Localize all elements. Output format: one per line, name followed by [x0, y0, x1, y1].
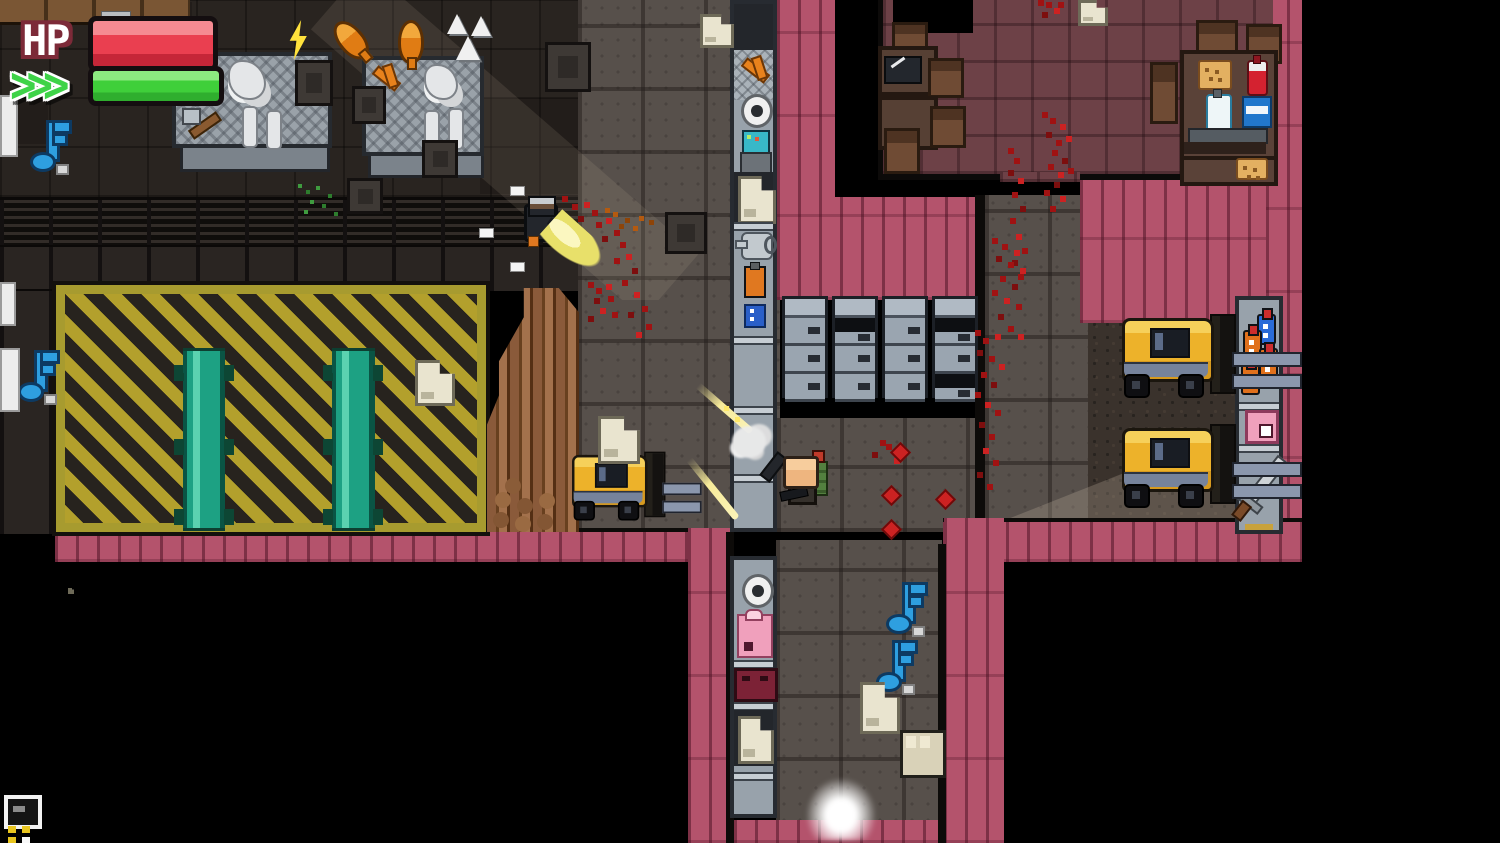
locker-cabinets	[782, 296, 978, 398]
note-head	[30, 152, 56, 172]
tracer-sparks	[724, 406, 729, 411]
torch-icon	[398, 20, 424, 64]
music-note-pickup	[14, 350, 56, 400]
conveyor-belt	[183, 348, 225, 531]
forklift-window	[1150, 328, 1190, 358]
bullet-casing	[479, 228, 494, 238]
green-particles	[298, 184, 302, 188]
locker-drawer	[785, 318, 825, 346]
vent-wall-row	[0, 197, 585, 248]
note-flag	[898, 640, 918, 654]
locker-drawer	[785, 346, 825, 374]
note-flag	[908, 595, 924, 608]
bullet-casing	[510, 186, 525, 196]
blood-trail	[975, 330, 981, 336]
wrench-item	[739, 56, 769, 82]
shelf-bar	[734, 406, 773, 415]
canister-item	[744, 266, 766, 298]
note-flag	[40, 363, 56, 376]
edge-item	[0, 348, 20, 412]
hammer-head	[182, 108, 201, 125]
locker-drawer	[885, 346, 925, 374]
locker-drawer-open	[935, 374, 975, 402]
cafeteria-doorway	[1000, 172, 1080, 182]
chair	[1150, 62, 1178, 124]
blood-splatter	[1038, 0, 1044, 6]
crate-beige	[900, 730, 946, 778]
crate-dark	[545, 42, 591, 92]
locker-drawer	[835, 346, 875, 374]
locker-drawer	[835, 374, 875, 402]
conveyor-brackets	[183, 357, 193, 373]
stamina-chevrons-icon: >>>	[10, 61, 59, 112]
blood-trail	[992, 238, 998, 244]
ketchup-bottle	[1247, 60, 1268, 96]
enemy-hand	[528, 236, 539, 247]
forklift	[1122, 312, 1300, 400]
stamina-bar	[88, 66, 224, 106]
locker-top	[935, 299, 975, 318]
machine-part	[740, 152, 772, 174]
locker	[782, 296, 828, 398]
player-head	[783, 456, 819, 489]
note-flag	[52, 133, 68, 146]
corridor-wall-left	[688, 528, 730, 843]
plank-band	[55, 528, 700, 562]
bread-item	[1198, 60, 1232, 90]
corridor-wall-right	[944, 518, 1004, 843]
forklift-fork	[662, 501, 701, 513]
watering-can-item	[741, 232, 773, 260]
note-shadow	[912, 626, 925, 637]
forklift-wheel	[1124, 484, 1150, 508]
smoke-puff	[732, 426, 766, 458]
forklift-fork	[1232, 462, 1302, 477]
music-note-pickup	[882, 582, 924, 632]
white-cone-icon	[447, 14, 467, 34]
note-shadow	[56, 164, 69, 175]
shelf-yellow-strip	[1245, 524, 1273, 530]
shelf-bar	[734, 222, 773, 231]
forklift-window	[1150, 438, 1190, 468]
forklift	[572, 450, 718, 522]
locker-drawer	[935, 346, 975, 374]
shelf-dark-box	[734, 4, 773, 50]
spacer	[68, 588, 74, 594]
forklift-window	[595, 463, 628, 488]
locker-top	[785, 299, 825, 318]
forklift-wheel	[574, 501, 595, 521]
blood-splatter	[880, 440, 886, 446]
note-flag	[40, 350, 60, 364]
player-character	[778, 452, 824, 504]
locker-top	[885, 299, 925, 318]
shelf-bar	[734, 336, 773, 345]
locker-top	[835, 299, 875, 318]
blood-splatter	[1042, 112, 1048, 118]
stamina-bar-fill	[93, 71, 219, 101]
white-cone-icon	[456, 36, 480, 60]
note-flag	[908, 582, 928, 596]
bread-item	[1236, 158, 1268, 180]
plank-wall	[777, 197, 985, 300]
music-note-pickup	[26, 120, 68, 170]
game-viewport[interactable]: HP >>>	[0, 0, 1500, 843]
corridor-shelf	[730, 556, 777, 818]
forklift-wheel	[1178, 374, 1204, 398]
wrench-part	[751, 55, 769, 81]
hp-bar-fill	[93, 21, 213, 67]
note-shadow	[44, 394, 57, 405]
locker-drawer-open	[935, 318, 975, 346]
blood-splatter	[588, 282, 594, 288]
edge-item	[0, 282, 16, 326]
locker	[882, 296, 928, 398]
floor-shadow-patch	[480, 98, 580, 194]
chair	[930, 106, 966, 148]
forklift-fork	[662, 483, 701, 495]
hazard-stripe-zone	[56, 285, 486, 532]
debris-dots	[605, 208, 610, 213]
note-flag	[52, 120, 72, 134]
chair	[884, 128, 920, 174]
bullet-casing	[510, 262, 525, 272]
locker	[832, 296, 878, 398]
chair	[928, 58, 964, 98]
void-notch	[835, 0, 878, 197]
conveyor-brackets	[332, 357, 342, 373]
map-edge-box	[4, 795, 42, 829]
metal-rod	[266, 110, 282, 150]
blue-box-item	[744, 304, 766, 328]
forklift-fork	[1232, 484, 1302, 499]
locker-drawer	[785, 374, 825, 402]
note-head	[18, 382, 44, 402]
conveyor-belt	[332, 348, 375, 531]
yellow-dots	[8, 826, 16, 833]
blood-splatter	[562, 196, 568, 202]
forklift	[1122, 422, 1300, 510]
locker	[932, 296, 978, 398]
blue-can-item	[1242, 96, 1272, 128]
locker-drawer	[885, 318, 925, 346]
hp-bar	[88, 16, 218, 72]
shelf-bar	[734, 772, 773, 781]
enemy-head	[528, 196, 556, 217]
red-crate-item	[734, 668, 778, 702]
note-flag	[898, 653, 914, 666]
wall-line	[938, 544, 946, 843]
light-glow	[806, 778, 876, 840]
forklift-wheel	[1178, 484, 1204, 508]
helmet-item	[742, 574, 774, 608]
grill-item	[884, 56, 922, 84]
stool	[347, 178, 383, 214]
white-cone-icon	[471, 16, 491, 36]
helmet-item	[741, 94, 773, 128]
locker-drawer-open	[835, 318, 875, 346]
note-head	[886, 614, 912, 634]
crate-dark	[665, 212, 707, 254]
workbench-base	[180, 144, 330, 172]
metal-rod	[242, 106, 258, 148]
blood-trail	[1008, 148, 1014, 154]
locker-drawer	[885, 374, 925, 402]
milk-bottle	[1206, 94, 1232, 132]
log-ends	[495, 492, 511, 508]
forklift-wheel	[1124, 374, 1150, 398]
stool	[422, 140, 458, 178]
stool	[352, 86, 386, 124]
forklift-fork	[1232, 374, 1302, 389]
note-shadow	[902, 684, 915, 695]
plank-wall	[777, 0, 835, 200]
pink-bag-item	[737, 614, 773, 658]
hammer-icon	[182, 106, 222, 140]
forklift-fork	[1232, 352, 1302, 367]
crate-dark	[295, 60, 333, 106]
forklift-wheel	[618, 501, 639, 521]
table-shadow	[1184, 142, 1266, 154]
